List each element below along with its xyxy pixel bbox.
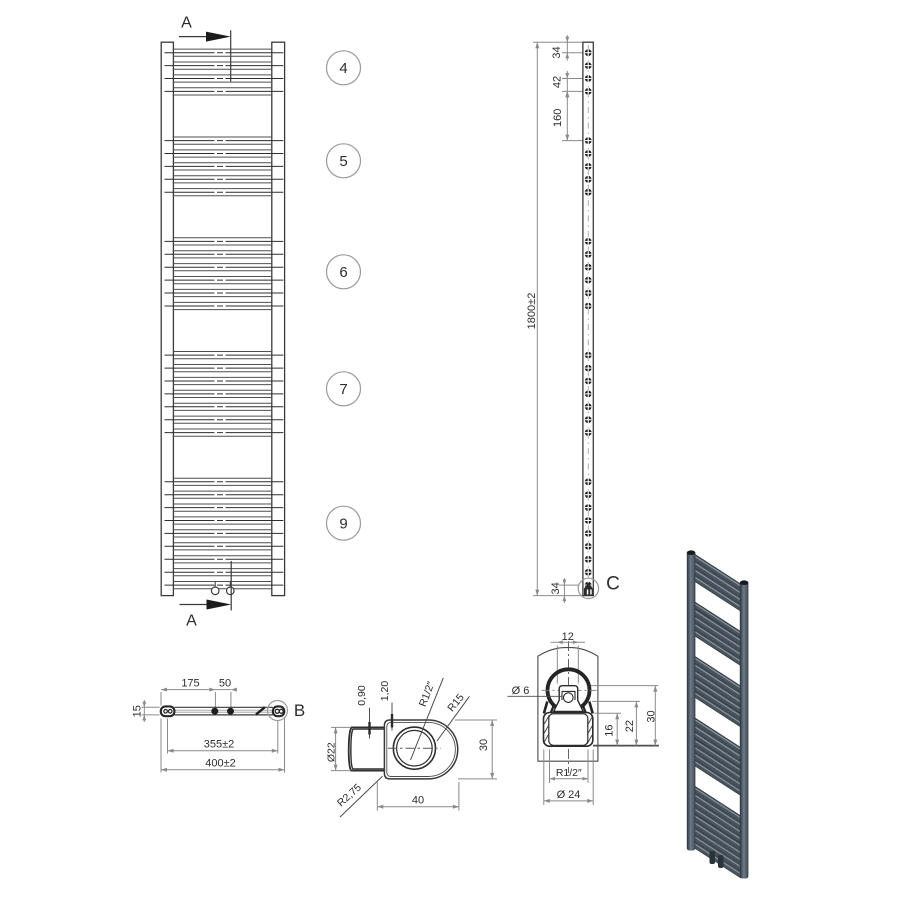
svg-text:30: 30 [478,739,490,751]
svg-text:A: A [181,15,192,32]
svg-text:Ø22: Ø22 [325,742,337,762]
svg-text:355±2: 355±2 [204,739,235,751]
svg-text:50: 50 [219,678,231,690]
svg-text:4: 4 [339,60,347,77]
svg-text:0,90: 0,90 [356,685,368,706]
svg-text:175: 175 [181,678,199,690]
svg-text:6: 6 [339,264,347,281]
svg-text:R1/2″: R1/2″ [556,767,582,779]
svg-text:15: 15 [132,705,144,717]
svg-text:400±2: 400±2 [205,758,236,770]
svg-text:42: 42 [551,76,563,88]
svg-text:1,20: 1,20 [379,681,391,702]
svg-text:40: 40 [412,795,424,807]
svg-text:12: 12 [562,631,574,643]
svg-text:34: 34 [550,582,562,594]
svg-text:B: B [294,701,305,720]
svg-text:9: 9 [339,515,347,532]
svg-text:30: 30 [645,710,657,722]
svg-text:Ø 24: Ø 24 [557,789,581,801]
svg-text:16: 16 [603,724,615,736]
svg-text:1800±2: 1800±2 [526,293,538,330]
svg-text:7: 7 [339,381,347,398]
svg-text:22: 22 [624,720,636,732]
svg-text:34: 34 [551,46,563,58]
svg-text:160: 160 [552,109,564,127]
svg-text:5: 5 [339,153,347,170]
svg-text:Ø 6: Ø 6 [512,685,530,697]
svg-text:C: C [606,574,620,595]
svg-text:A: A [186,613,197,630]
